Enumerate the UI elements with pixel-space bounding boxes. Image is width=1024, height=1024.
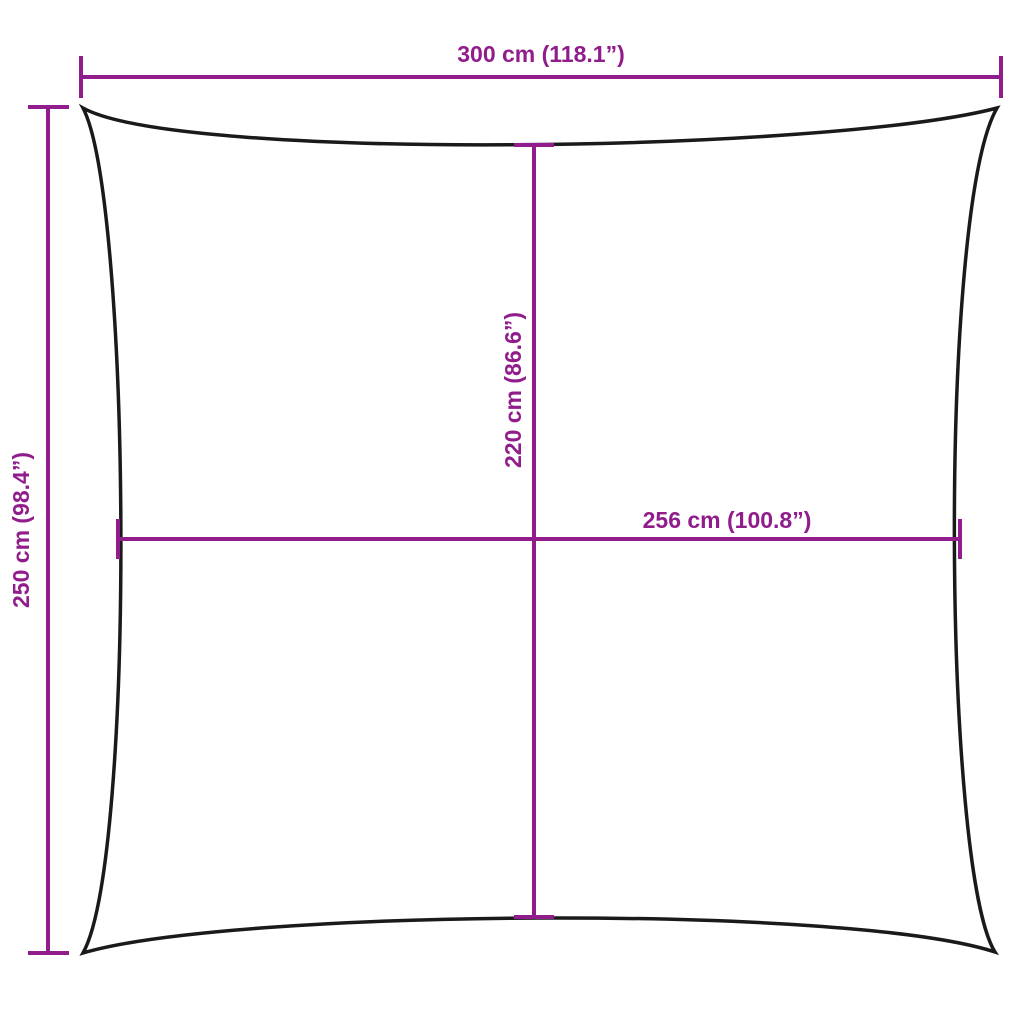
dimension-diagram: 300 cm (118.1”) 250 cm (98.4”) 220 cm (8… [0,0,1024,1024]
overall-width-label: 300 cm (118.1”) [457,41,625,67]
dimension-line-left [28,107,69,953]
center-width-label: 256 cm (100.8”) [643,507,812,533]
diagram-canvas: 300 cm (118.1”) 250 cm (98.4”) 220 cm (8… [0,0,1024,1024]
sail-outline [83,108,997,953]
center-height-label: 220 cm (86.6”) [500,312,526,468]
overall-height-label: 250 cm (98.4”) [8,452,34,608]
